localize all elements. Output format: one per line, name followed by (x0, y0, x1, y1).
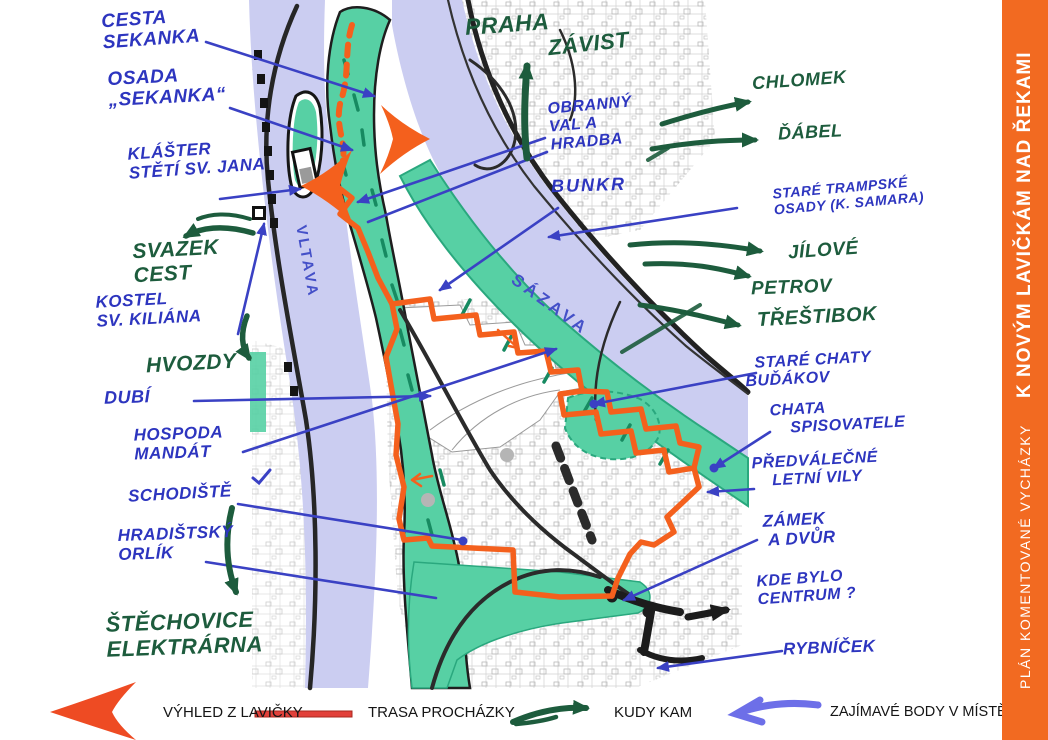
label-kde-bylo-centrum: KDE BYLO CENTRUM ? (756, 567, 857, 610)
sidebar-title-block: PLÁN KOMENTOVANÉ VYCHÁZKY K NOVÝM LAVIČK… (1014, 51, 1036, 689)
label-dabel: ĎÁBEL (778, 120, 843, 144)
label-cesta-sekanka: CESTA SEKANKA (101, 5, 201, 54)
label-svazek-cest: SVAZEK CEST (132, 236, 221, 288)
label-predvalecne-letni-vily: PŘEDVÁLEČNÉ LETNÍ VILY (751, 449, 879, 491)
jilove-arrow (630, 243, 760, 251)
label-stare-chaty-budakov: STARÉ CHATY BUĎÁKOV (744, 349, 872, 391)
plan-subtitle: PLÁN KOMENTOVANÉ VYCHÁZKY (1017, 424, 1033, 689)
legend-label-points: ZAJÍMAVÉ BODY V MÍSTĚ (830, 704, 1007, 720)
legend-viewpoint-star-icon (50, 682, 136, 740)
sidebar: PLÁN KOMENTOVANÉ VYCHÁZKY K NOVÝM LAVIČK… (1002, 0, 1048, 740)
svazek-arrow (186, 228, 253, 236)
hvozdy-arrow (243, 316, 249, 358)
label-dubi: DUBÍ (104, 386, 151, 408)
label-stechovice-elektrarna: ŠTĚCHOVICE ELEKTRÁRNA (105, 607, 263, 662)
label-petrov: PETROV (751, 276, 833, 300)
petrov-arrow (645, 264, 748, 276)
svazek-arrow-2 (198, 214, 250, 219)
walking-plan-page: CESTA SEKANKA OSADA „SEKANKA“ KLÁŠTER ST… (0, 0, 1048, 740)
legend-label-route: TRASA PROCHÁZKY (368, 704, 515, 721)
plan-title: K NOVÝM LAVIČKÁM NAD ŘEKAMI (1014, 51, 1035, 397)
label-hospoda-mandat: HOSPODA MANDÁT (133, 422, 224, 463)
legend-zajimave-body-arrow-icon (736, 700, 818, 722)
label-zamek-a-dvur: ZÁMEK A DVŮR (762, 508, 836, 550)
label-rybnicek: RYBNÍČEK (783, 636, 876, 658)
label-kostel-sv-kiliana: KOSTEL SV. KILIÁNA (95, 287, 202, 331)
label-chata-spisovatele: CHATA SPISOVATELE (769, 395, 906, 438)
label-obranny-val-a-hradba: OBRANNÝ VAL A HRADBA (547, 93, 636, 154)
label-hvozdy: HVOZDY (145, 350, 237, 378)
kostel-marker (252, 206, 266, 220)
praha-arrow (525, 66, 527, 158)
label-bunkr: BUNKR (551, 174, 627, 197)
legend-label-direction: KUDY KAM (614, 704, 692, 721)
legend-kudy-kam-arrow-icon (513, 708, 586, 724)
legend-label-viewpoint: VÝHLED Z LAVIČKY (163, 704, 303, 721)
label-hradistsky-orlik: HRADIŠTSKÝ ORLÍK (117, 522, 234, 564)
label-osada-sekanka: OSADA „SEKANKA“ (107, 63, 227, 112)
